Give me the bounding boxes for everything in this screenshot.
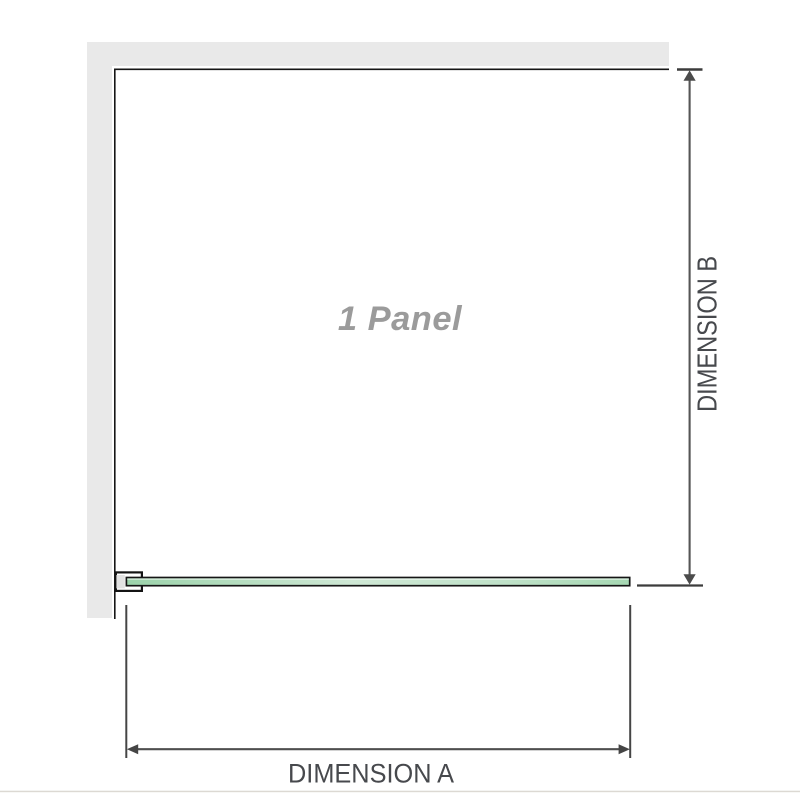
svg-text:DIMENSION A: DIMENSION A: [288, 759, 454, 789]
svg-text:DIMENSION B: DIMENSION B: [691, 256, 722, 412]
svg-text:1 Panel: 1 Panel: [338, 300, 463, 338]
